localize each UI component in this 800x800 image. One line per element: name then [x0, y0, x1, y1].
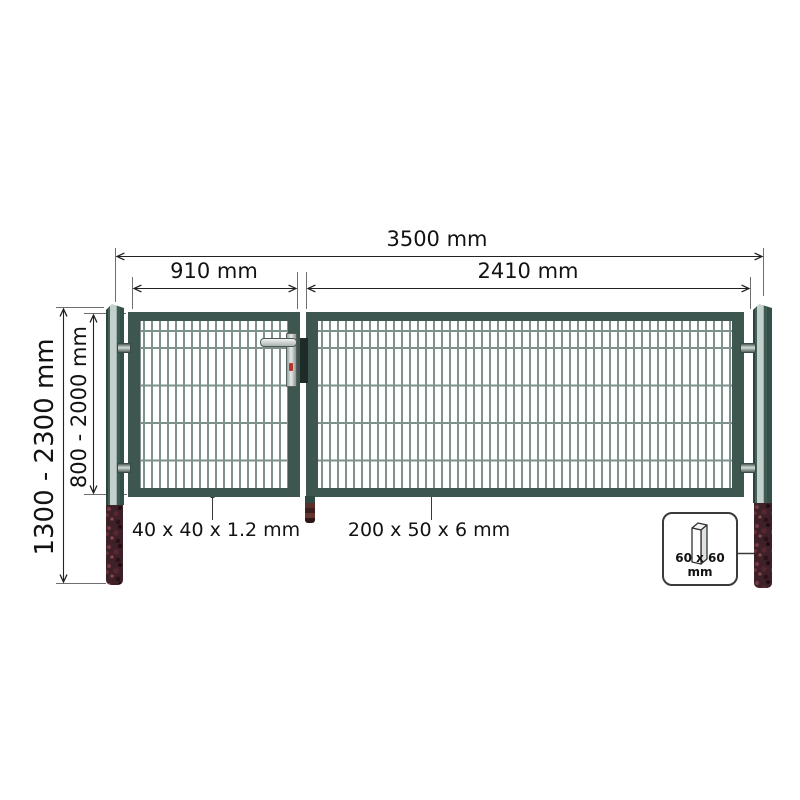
frame-profile-label: 40 x 40 x 1.2 mm	[116, 520, 316, 542]
keyhole-icon	[289, 363, 293, 371]
hinge-icon	[740, 463, 756, 473]
left-post-buried-section	[106, 505, 123, 585]
hinge-icon	[117, 343, 131, 353]
gate-technical-diagram: 60 x 60 mm 3500 mm 910 mm 2410 mm 1300 -…	[0, 0, 800, 800]
panel-profile-label: 200 x 50 x 6 mm	[329, 520, 529, 542]
handle-icon	[260, 338, 297, 347]
total-width-label: 3500 mm	[337, 227, 537, 251]
gate-height-label: 800 - 2000 mm	[67, 287, 91, 527]
hinge-icon	[740, 343, 756, 353]
gate-leaf-right	[306, 312, 744, 497]
post-profile-callout: 60 x 60 mm	[662, 512, 738, 586]
left-post-above-ground	[106, 304, 124, 505]
right-leaf-width-label: 2410 mm	[428, 259, 628, 283]
drop-rod	[305, 496, 315, 523]
hinge-icon	[117, 463, 131, 473]
right-post-above-ground	[753, 304, 772, 503]
left-leaf-width-label: 910 mm	[114, 259, 314, 283]
right-post-buried-section	[754, 503, 772, 588]
mesh-panel-right	[318, 321, 732, 488]
lock-strike-plate	[300, 338, 308, 383]
post-height-label: 1300 - 2300 mm	[31, 297, 61, 597]
post-section-label: 60 x 60 mm	[664, 551, 736, 579]
